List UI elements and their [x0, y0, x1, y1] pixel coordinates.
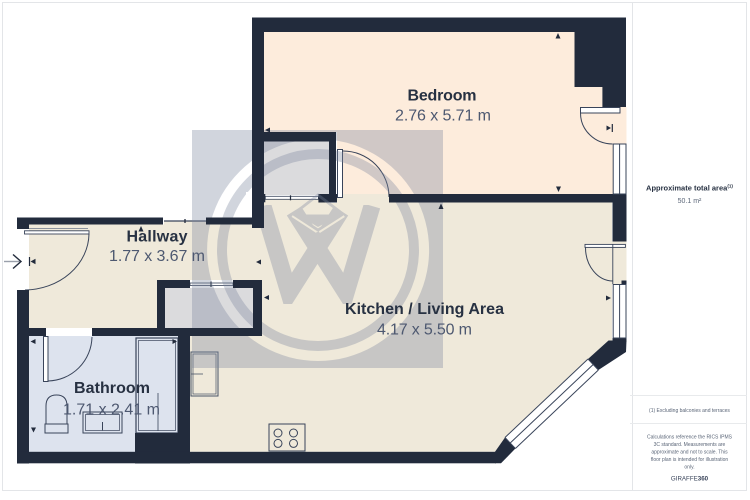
svg-text:2.76 x 5.71 m: 2.76 x 5.71 m — [395, 108, 491, 125]
svg-text:Bathroom: Bathroom — [74, 380, 150, 397]
svg-text:4.17 x 5.50 m: 4.17 x 5.50 m — [377, 322, 472, 339]
svg-text:Kitchen / Living Area: Kitchen / Living Area — [345, 301, 504, 318]
svg-text:only.: only. — [684, 465, 694, 471]
svg-text:approximate and not to scale.: approximate and not to scale. This — [651, 450, 728, 456]
svg-text:1.77 x 3.67 m: 1.77 x 3.67 m — [109, 248, 205, 265]
svg-text:GIRAFFE360: GIRAFFE360 — [671, 476, 709, 483]
svg-text:Approximate total area(1): Approximate total area(1) — [646, 184, 733, 193]
svg-text:Bedroom: Bedroom — [408, 88, 477, 105]
svg-text:1.71 x 2.41 m: 1.71 x 2.41 m — [63, 402, 160, 419]
svg-text:(1) Excluding balconies and te: (1) Excluding balconies and terraces — [649, 408, 730, 414]
svg-text:Hallway: Hallway — [127, 229, 188, 246]
svg-text:Calculations reference the RIC: Calculations reference the RICS IPMS — [647, 435, 733, 441]
svg-text:3C standard. Measurements are: 3C standard. Measurements are — [654, 442, 726, 448]
svg-text:50.1 m²: 50.1 m² — [678, 198, 702, 205]
svg-text:floor plan is intended for ill: floor plan is intended for illustration — [651, 457, 728, 463]
